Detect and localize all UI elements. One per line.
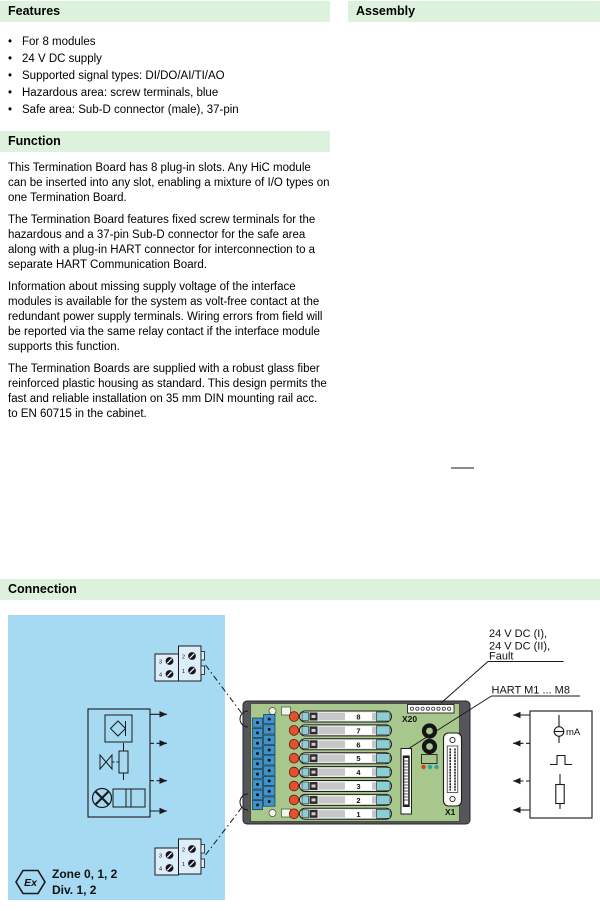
milliamp-label: mA — [566, 727, 581, 738]
power-label-line1: 24 V DC (I), — [489, 628, 547, 640]
feature-item: Supported signal types: DI/DO/AI/TI/AO — [8, 68, 328, 85]
module-slot-number: 6 — [356, 740, 360, 749]
terminal-number: 2 — [182, 848, 185, 854]
features-list: For 8 modules 24 V DC supply Supported s… — [8, 34, 328, 119]
feature-item: Hazardous area: screw terminals, blue — [8, 85, 328, 102]
status-leds — [421, 765, 438, 769]
features-section-header: Features — [0, 1, 330, 22]
led-red — [421, 765, 425, 769]
terminal-number: 3 — [159, 660, 162, 666]
terminal-number: 1 — [182, 862, 185, 868]
terminal-number: 3 — [159, 854, 162, 860]
module-slot-number: 3 — [356, 782, 360, 791]
led-green — [428, 765, 432, 769]
terminal-number: 1 — [182, 669, 185, 675]
feature-item: 24 V DC supply — [8, 51, 328, 68]
function-paragraph: The Termination Boards are supplied with… — [8, 362, 330, 422]
function-paragraph: This Termination Board has 8 plug-in slo… — [8, 161, 330, 206]
datasheet-page: Features Assembly For 8 modules 24 V DC … — [0, 0, 600, 911]
feature-text: For 8 modules — [22, 34, 96, 51]
assembly-section-header: Assembly — [348, 1, 600, 22]
terminal-number: 4 — [159, 867, 162, 873]
x20-connector — [408, 705, 455, 714]
connection-section-header: Connection — [0, 579, 600, 600]
feature-item: Safe area: Sub-D connector (male), 37-pi… — [8, 102, 328, 119]
hart-label: HART M1 ... M8 — [492, 685, 570, 697]
jumper-block — [422, 755, 438, 764]
x20-label: X20 — [402, 714, 417, 724]
assembly-placeholder-dash — [451, 467, 474, 469]
feature-text: Safe area: Sub-D connector (male), 37-pi… — [22, 102, 239, 119]
division-label: Div. 1, 2 — [52, 883, 97, 897]
zone-label: Zone 0, 1, 2 — [52, 867, 118, 881]
function-text: This Termination Board has 8 plug-in slo… — [8, 161, 330, 429]
module-slot-number: 1 — [356, 810, 360, 819]
field-screw-terminals — [253, 715, 276, 810]
control-system-box: mA — [513, 711, 592, 818]
function-section-header: Function — [0, 131, 330, 152]
x1-subd-connector — [444, 733, 462, 806]
function-paragraph: Information about missing supply voltage… — [8, 280, 330, 355]
module-slot-number: 7 — [356, 726, 360, 735]
x1-label: X1 — [445, 807, 456, 817]
module-slot-number: 8 — [356, 713, 360, 722]
hart-connector — [401, 749, 412, 815]
feature-text: 24 V DC supply — [22, 51, 102, 68]
terminal-number: 2 — [182, 655, 185, 661]
module-slot-number: 2 — [356, 796, 360, 805]
fault-label: Fault — [489, 651, 513, 663]
termination-board: 8 7 6 5 4 3 2 1 X20 — [240, 701, 470, 824]
mounting-hole — [282, 707, 291, 715]
feature-text: Supported signal types: DI/DO/AI/TI/AO — [22, 68, 225, 85]
safe-signal-arrows — [513, 715, 530, 810]
mounting-hole — [269, 810, 276, 817]
module-slot-number: 5 — [356, 754, 360, 763]
led-green — [434, 765, 438, 769]
terminal-number: 4 — [159, 673, 162, 679]
feature-item: For 8 modules — [8, 34, 328, 51]
function-paragraph: The Termination Board features fixed scr… — [8, 213, 330, 273]
feature-text: Hazardous area: screw terminals, blue — [22, 85, 218, 102]
mounting-hole — [269, 708, 276, 715]
connection-diagram: 3 4 2 1 3 4 2 1 — [0, 612, 600, 911]
ex-label: Ex — [24, 877, 38, 889]
